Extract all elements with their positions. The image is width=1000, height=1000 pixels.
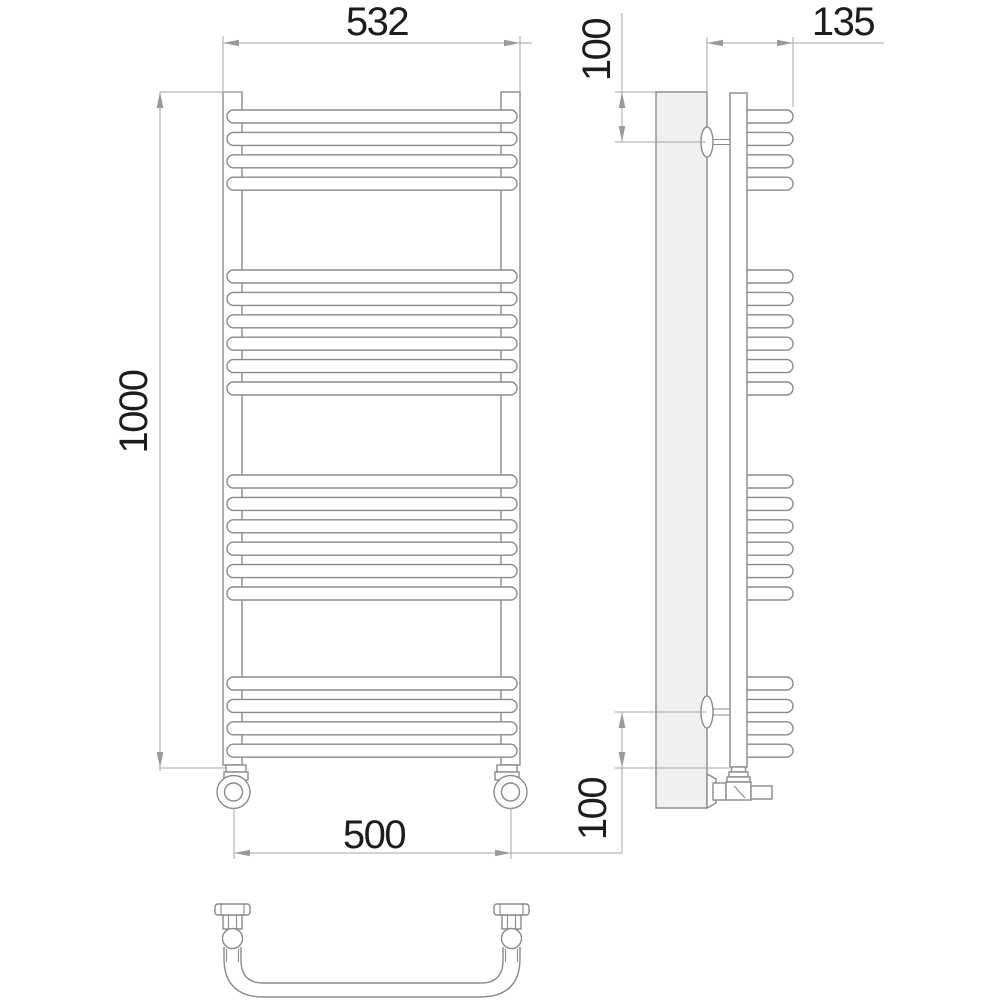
fitting-stem [223, 915, 242, 929]
tube-coupling-lines [227, 949, 518, 962]
dim-label-top-offset: 100 [575, 19, 619, 81]
side-riser-tube [730, 93, 747, 767]
rung [741, 699, 793, 712]
rung [227, 542, 517, 555]
arrowhead [619, 712, 626, 728]
bottom-right-fitting [494, 904, 529, 949]
rung [741, 155, 793, 168]
rung [227, 110, 517, 123]
arrowhead [777, 40, 793, 47]
dim-depth: 135 [707, 0, 884, 107]
dim-label-bottom-offset: 100 [571, 778, 615, 840]
valve-collar [729, 772, 748, 777]
rung [227, 155, 517, 168]
arrowhead [157, 92, 164, 108]
valve-nut [713, 783, 726, 800]
rung [227, 744, 517, 757]
rung [227, 382, 517, 395]
front-view: 532 1000 500 [112, 0, 622, 859]
rung [227, 587, 517, 600]
rung [227, 677, 517, 690]
arrowhead [619, 752, 626, 768]
side-view: 135 100 100 [571, 0, 884, 853]
dim-label-depth: 135 [812, 0, 874, 44]
arrowhead [234, 850, 250, 857]
front-left-valve-collar [226, 765, 246, 772]
front-right-pipe-end [502, 783, 520, 801]
wall-panel [656, 92, 707, 808]
rung [227, 520, 517, 533]
rung [227, 132, 517, 145]
rung [741, 315, 793, 328]
rung [741, 270, 793, 283]
technical-drawing-page: 532 1000 500 [0, 0, 1000, 1000]
dim-label-bottom-width: 500 [343, 813, 405, 857]
rung [741, 722, 793, 735]
valve-collar [732, 767, 746, 772]
valve-outlet [751, 786, 772, 799]
fitting-ball [502, 929, 522, 949]
rung [741, 565, 793, 578]
rung [227, 337, 517, 350]
fitting-flange [494, 904, 529, 915]
arrowhead [619, 126, 626, 142]
arrowhead [157, 752, 164, 768]
rung [227, 315, 517, 328]
dim-bottom-width: 500 [234, 808, 622, 859]
rung [741, 177, 793, 190]
rung [227, 699, 517, 712]
rung [741, 475, 793, 488]
front-left-riser [223, 92, 242, 765]
front-right-valve-collar [497, 765, 517, 772]
rung [227, 292, 517, 305]
rung [741, 587, 793, 600]
rung [741, 497, 793, 510]
rung [741, 292, 793, 305]
bottom-view [215, 904, 529, 997]
arrowhead [619, 92, 626, 108]
front-rungs [227, 110, 517, 757]
side-valve-assembly [707, 767, 772, 808]
rung [227, 722, 517, 735]
bottom-left-fitting [215, 904, 250, 949]
front-left-pipe-end [225, 783, 243, 801]
rung [227, 270, 517, 283]
fitting-flange [215, 904, 250, 915]
rung [741, 744, 793, 757]
rung [227, 360, 517, 373]
dim-label-height: 1000 [112, 370, 156, 453]
rung [741, 360, 793, 373]
rung [227, 497, 517, 510]
rung [741, 132, 793, 145]
rung [227, 565, 517, 578]
valve-collar [727, 777, 750, 782]
arrowhead [707, 40, 723, 47]
rung [741, 677, 793, 690]
fitting-ball [223, 929, 243, 949]
side-rungs [741, 110, 793, 757]
rung [741, 542, 793, 555]
arrowhead [504, 40, 520, 47]
bottom-tube-outer [224, 947, 520, 997]
rung [741, 520, 793, 533]
towel-rail-drawing: 532 1000 500 [0, 0, 1000, 1000]
dim-top-width: 532 [223, 0, 532, 91]
arrowhead [495, 850, 511, 857]
front-right-riser [501, 92, 520, 765]
rung [741, 337, 793, 350]
rung [227, 177, 517, 190]
bottom-tube-inner [241, 947, 503, 983]
rung [227, 475, 517, 488]
fitting-stem [502, 915, 521, 929]
dim-label-top-width: 532 [346, 0, 408, 44]
rung [741, 110, 793, 123]
rung [741, 382, 793, 395]
arrowhead [223, 40, 239, 47]
